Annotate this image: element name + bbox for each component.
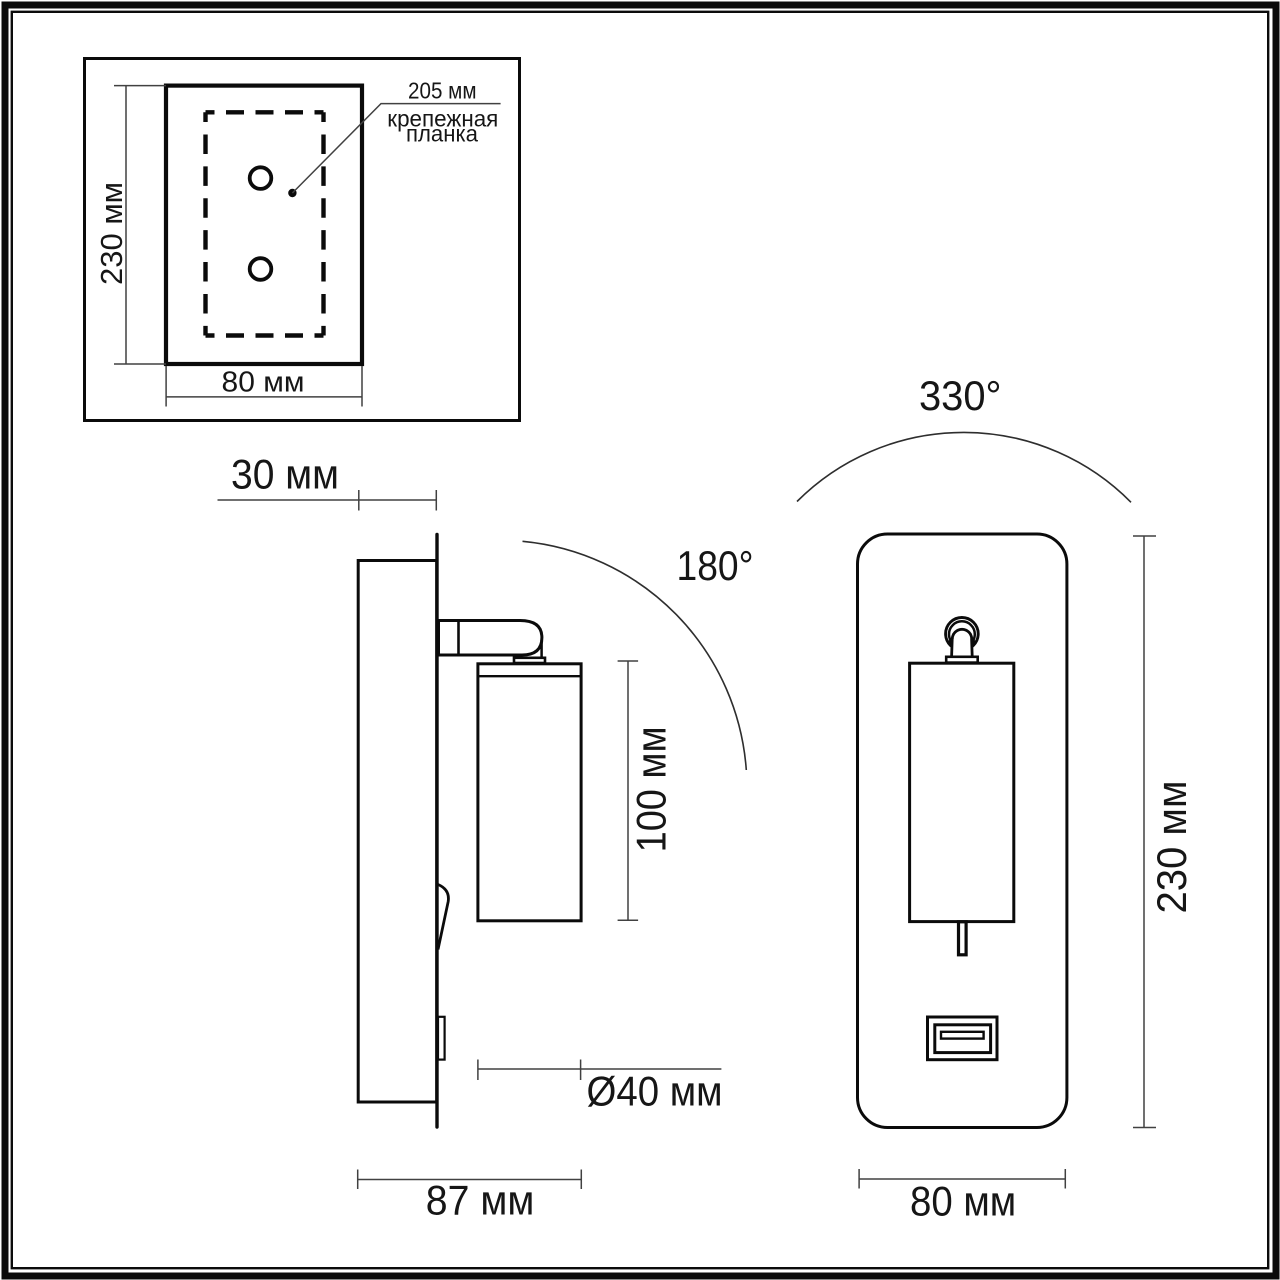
svg-text:180°: 180° [677, 542, 754, 589]
svg-text:планка: планка [406, 121, 478, 147]
svg-text:80 мм: 80 мм [910, 1178, 1016, 1225]
svg-text:80 мм: 80 мм [222, 366, 305, 398]
svg-text:230 мм: 230 мм [1148, 781, 1195, 914]
svg-text:100 мм: 100 мм [628, 726, 675, 852]
svg-text:330°: 330° [919, 372, 1002, 419]
svg-text:87 мм: 87 мм [426, 1177, 535, 1224]
svg-text:205 мм: 205 мм [408, 77, 477, 103]
svg-text:230 мм: 230 мм [94, 182, 129, 285]
svg-text:Ø40 мм: Ø40 мм [587, 1068, 723, 1115]
svg-text:30 мм: 30 мм [231, 451, 339, 498]
